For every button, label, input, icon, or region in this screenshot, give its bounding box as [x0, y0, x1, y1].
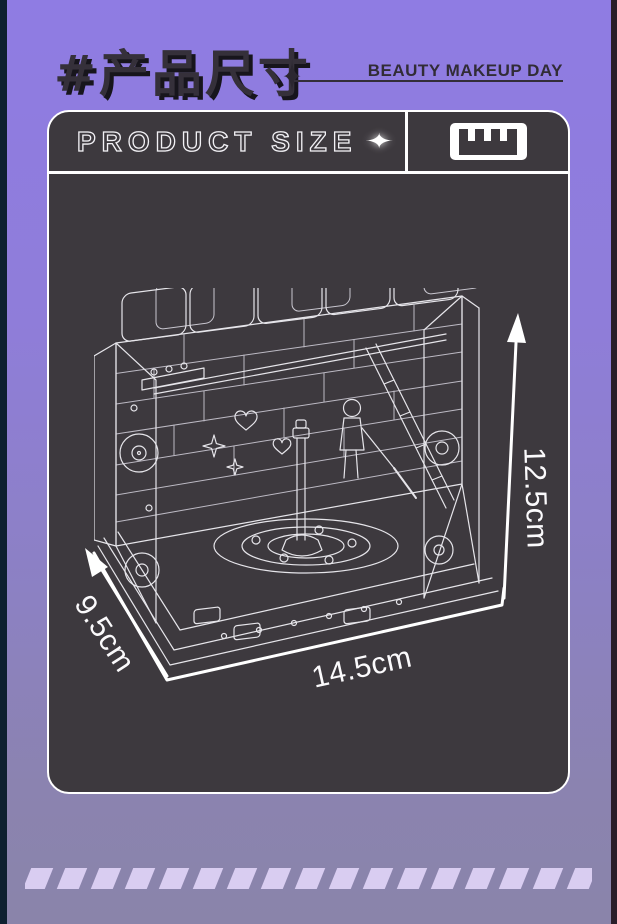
stripe [57, 868, 87, 889]
stripe [567, 868, 592, 889]
height-dimension-label: 12.5cm [516, 447, 554, 550]
stripe [125, 868, 155, 889]
product-size-panel: PRODUCT SIZE ✦ [47, 110, 570, 794]
panel-title-cell: PRODUCT SIZE ✦ [49, 112, 408, 171]
brand-text: BEAUTY MAKEUP DAY [0, 61, 563, 81]
stripe [499, 868, 529, 889]
stripe [193, 868, 223, 889]
stripe [465, 868, 495, 889]
stripe [329, 868, 359, 889]
panel-icon-cell [408, 112, 568, 171]
stripe [363, 868, 393, 889]
panel-title: PRODUCT SIZE [77, 126, 357, 158]
stripe [533, 868, 563, 889]
stripe [227, 868, 257, 889]
stripe [159, 868, 189, 889]
stripe [261, 868, 291, 889]
stripe [397, 868, 427, 889]
product-size-poster: #产品尺寸 ✦ BEAUTY MAKEUP DAY PRODUCT SIZE ✦ [0, 0, 617, 924]
ruler-comb-glyph [459, 129, 517, 155]
dimension-arrows [49, 174, 567, 793]
panel-header: PRODUCT SIZE ✦ [49, 112, 568, 174]
stripe-band [25, 868, 592, 889]
stripe [295, 868, 325, 889]
stripe [91, 868, 121, 889]
stripe [25, 868, 53, 889]
left-edge-border [0, 0, 7, 924]
sparkle-icon: ✦ [364, 129, 394, 154]
ruler-icon [450, 123, 527, 160]
panel-body: 12.5cm 9.5cm 14.5cm [49, 174, 568, 793]
stripe [431, 868, 461, 889]
right-edge-border [611, 0, 617, 924]
